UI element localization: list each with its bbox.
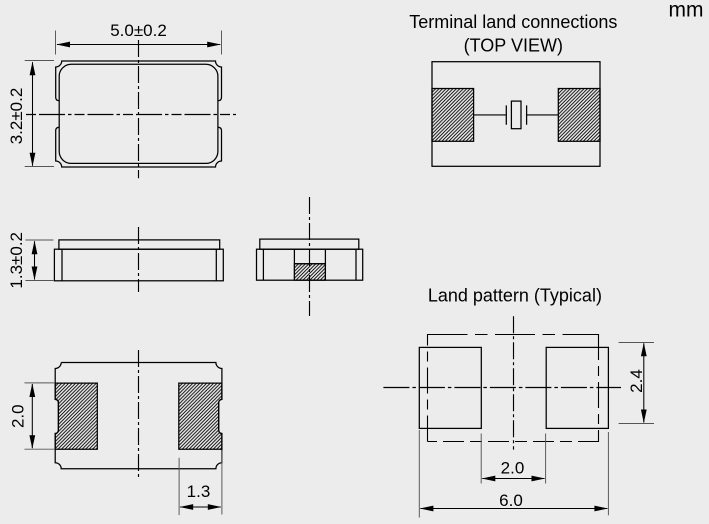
svg-text:(TOP VIEW): (TOP VIEW) bbox=[464, 35, 563, 55]
svg-text:1.3: 1.3 bbox=[187, 482, 211, 501]
svg-text:3.2±0.2: 3.2±0.2 bbox=[7, 88, 26, 145]
svg-text:2.0: 2.0 bbox=[501, 459, 525, 478]
svg-text:2.4: 2.4 bbox=[627, 369, 646, 393]
svg-text:2.0: 2.0 bbox=[9, 404, 28, 428]
svg-text:1.3±0.2: 1.3±0.2 bbox=[7, 232, 26, 289]
svg-text:Terminal land connections: Terminal land connections bbox=[409, 12, 617, 32]
svg-text:6.0: 6.0 bbox=[499, 491, 523, 510]
svg-text:5.0±0.2: 5.0±0.2 bbox=[110, 21, 167, 40]
svg-text:mm: mm bbox=[669, 0, 704, 22]
svg-text:Land pattern (Typical): Land pattern (Typical) bbox=[428, 286, 602, 306]
